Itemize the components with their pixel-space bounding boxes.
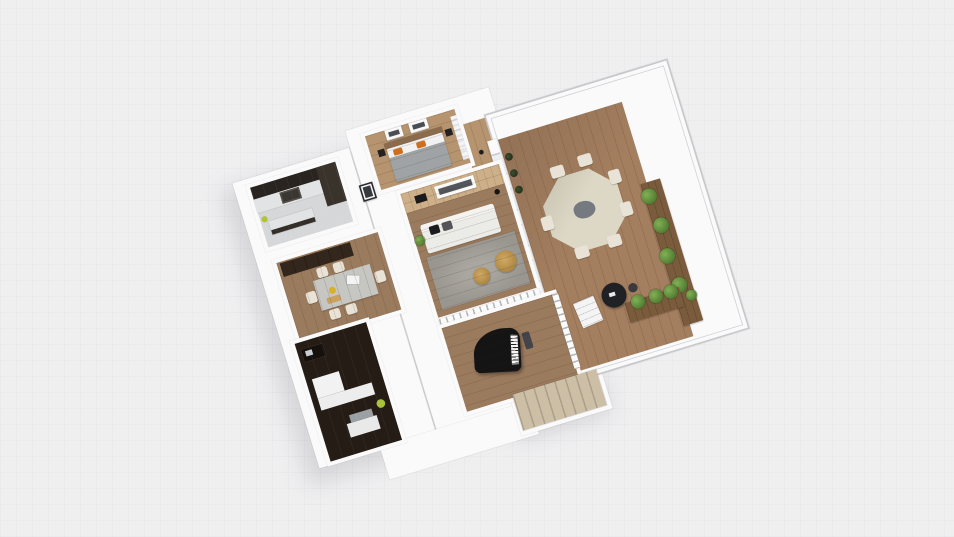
floorplan-3d-viewport[interactable] — [0, 0, 954, 537]
kitchen-island — [268, 208, 315, 235]
dining-chair-6 — [374, 269, 387, 283]
piano-bench — [521, 331, 533, 350]
grand-piano — [473, 327, 522, 373]
black-pillow — [428, 224, 440, 235]
apartment-plan — [201, 42, 768, 527]
dark-desk — [301, 344, 326, 362]
orange-pillow-1 — [393, 147, 404, 156]
gray-pillow — [441, 220, 453, 231]
page-background: { "scene": { "description": "3D isometri… — [0, 0, 954, 537]
orange-pillow-2 — [416, 140, 427, 149]
kitchen-plant — [261, 215, 269, 223]
white-tray — [347, 275, 360, 284]
floor-lamp — [494, 188, 501, 195]
yellow-plate — [328, 286, 337, 295]
laptop — [305, 349, 313, 356]
dining-chair-4 — [345, 302, 358, 315]
dining-chair-3 — [328, 307, 341, 320]
nightstand-right — [444, 128, 453, 137]
piano-keys — [510, 335, 519, 365]
office-plant — [375, 398, 386, 409]
cutting-board — [326, 294, 341, 304]
table-item — [609, 292, 616, 298]
